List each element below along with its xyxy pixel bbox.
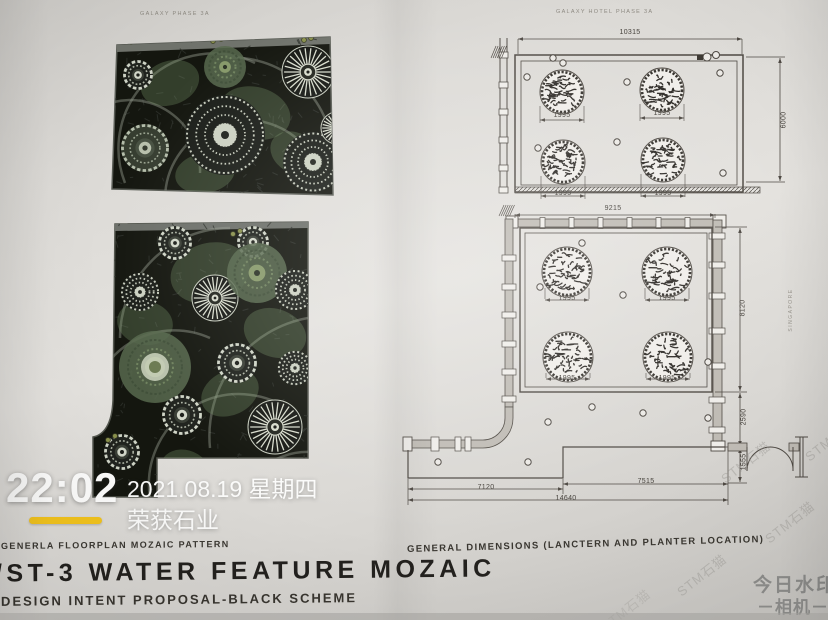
plan-bottom-total-dim-label: 14640 <box>556 495 577 502</box>
watermark-time: 22:02 <box>6 464 118 512</box>
plan-bottom-height-dim-label: 8120 <box>740 300 747 317</box>
photo-bottom-edge <box>0 613 828 620</box>
page-title: /ST-3 WATER FEATURE MOZAIC <box>0 554 496 588</box>
planter-dim-label: 1995 <box>659 295 676 302</box>
photo-page: GALAXY PHASE 3A GALAXY HOTEL PHASE 3A 10… <box>0 0 828 620</box>
plan-top-header: GALAXY HOTEL PHASE 3A <box>556 9 653 15</box>
planter-dim-label: 1995 <box>559 295 576 302</box>
planter-dim-label: 1995 <box>655 190 672 197</box>
mosaic-pattern-image-top <box>105 33 337 198</box>
watermark-date: 2021.08.19 星期四 <box>127 470 318 504</box>
dimension-plan-top <box>480 30 800 215</box>
left-caption: GENERLA FLOORPLAN MOZAIC PATTERN <box>1 539 230 551</box>
planter-dim-label: 1995 <box>555 190 572 197</box>
watermark-underline <box>29 517 102 524</box>
plan-bottom-right-dim-label: 7515 <box>638 478 655 485</box>
plan-bottom-offset-dim-label: 2590 <box>741 409 748 426</box>
plan-bottom-width-dim-label: 9215 <box>605 205 622 212</box>
plan-top-height-dim-label: 6000 <box>781 112 788 129</box>
planter-dim-label: 1995 <box>654 110 671 117</box>
diagonal-watermark: STM石猫 <box>672 549 730 600</box>
mosaic-pattern-image-bottom <box>90 218 335 503</box>
right-caption: GENERAL DIMENSIONS (LANCTERN AND PLANTER… <box>407 534 764 555</box>
planter-dim-label: 1995 <box>659 375 676 382</box>
plan-bottom-left-dim-label: 7120 <box>478 484 495 491</box>
dimension-plan-bottom <box>395 200 825 510</box>
planter-dim-label: 1995 <box>559 375 576 382</box>
planter-dim-label: 1995 <box>554 112 571 119</box>
vertical-watermark: SINGAPORE <box>788 288 794 331</box>
page-subtitle: DESIGN INTENT PROPOSAL-BLACK SCHEME <box>1 590 357 609</box>
plan-top-width-dim-label: 10315 <box>620 29 641 36</box>
watermark-brand: 荣获石业 <box>127 501 219 535</box>
mosaic-top-header: GALAXY PHASE 3A <box>140 11 210 17</box>
